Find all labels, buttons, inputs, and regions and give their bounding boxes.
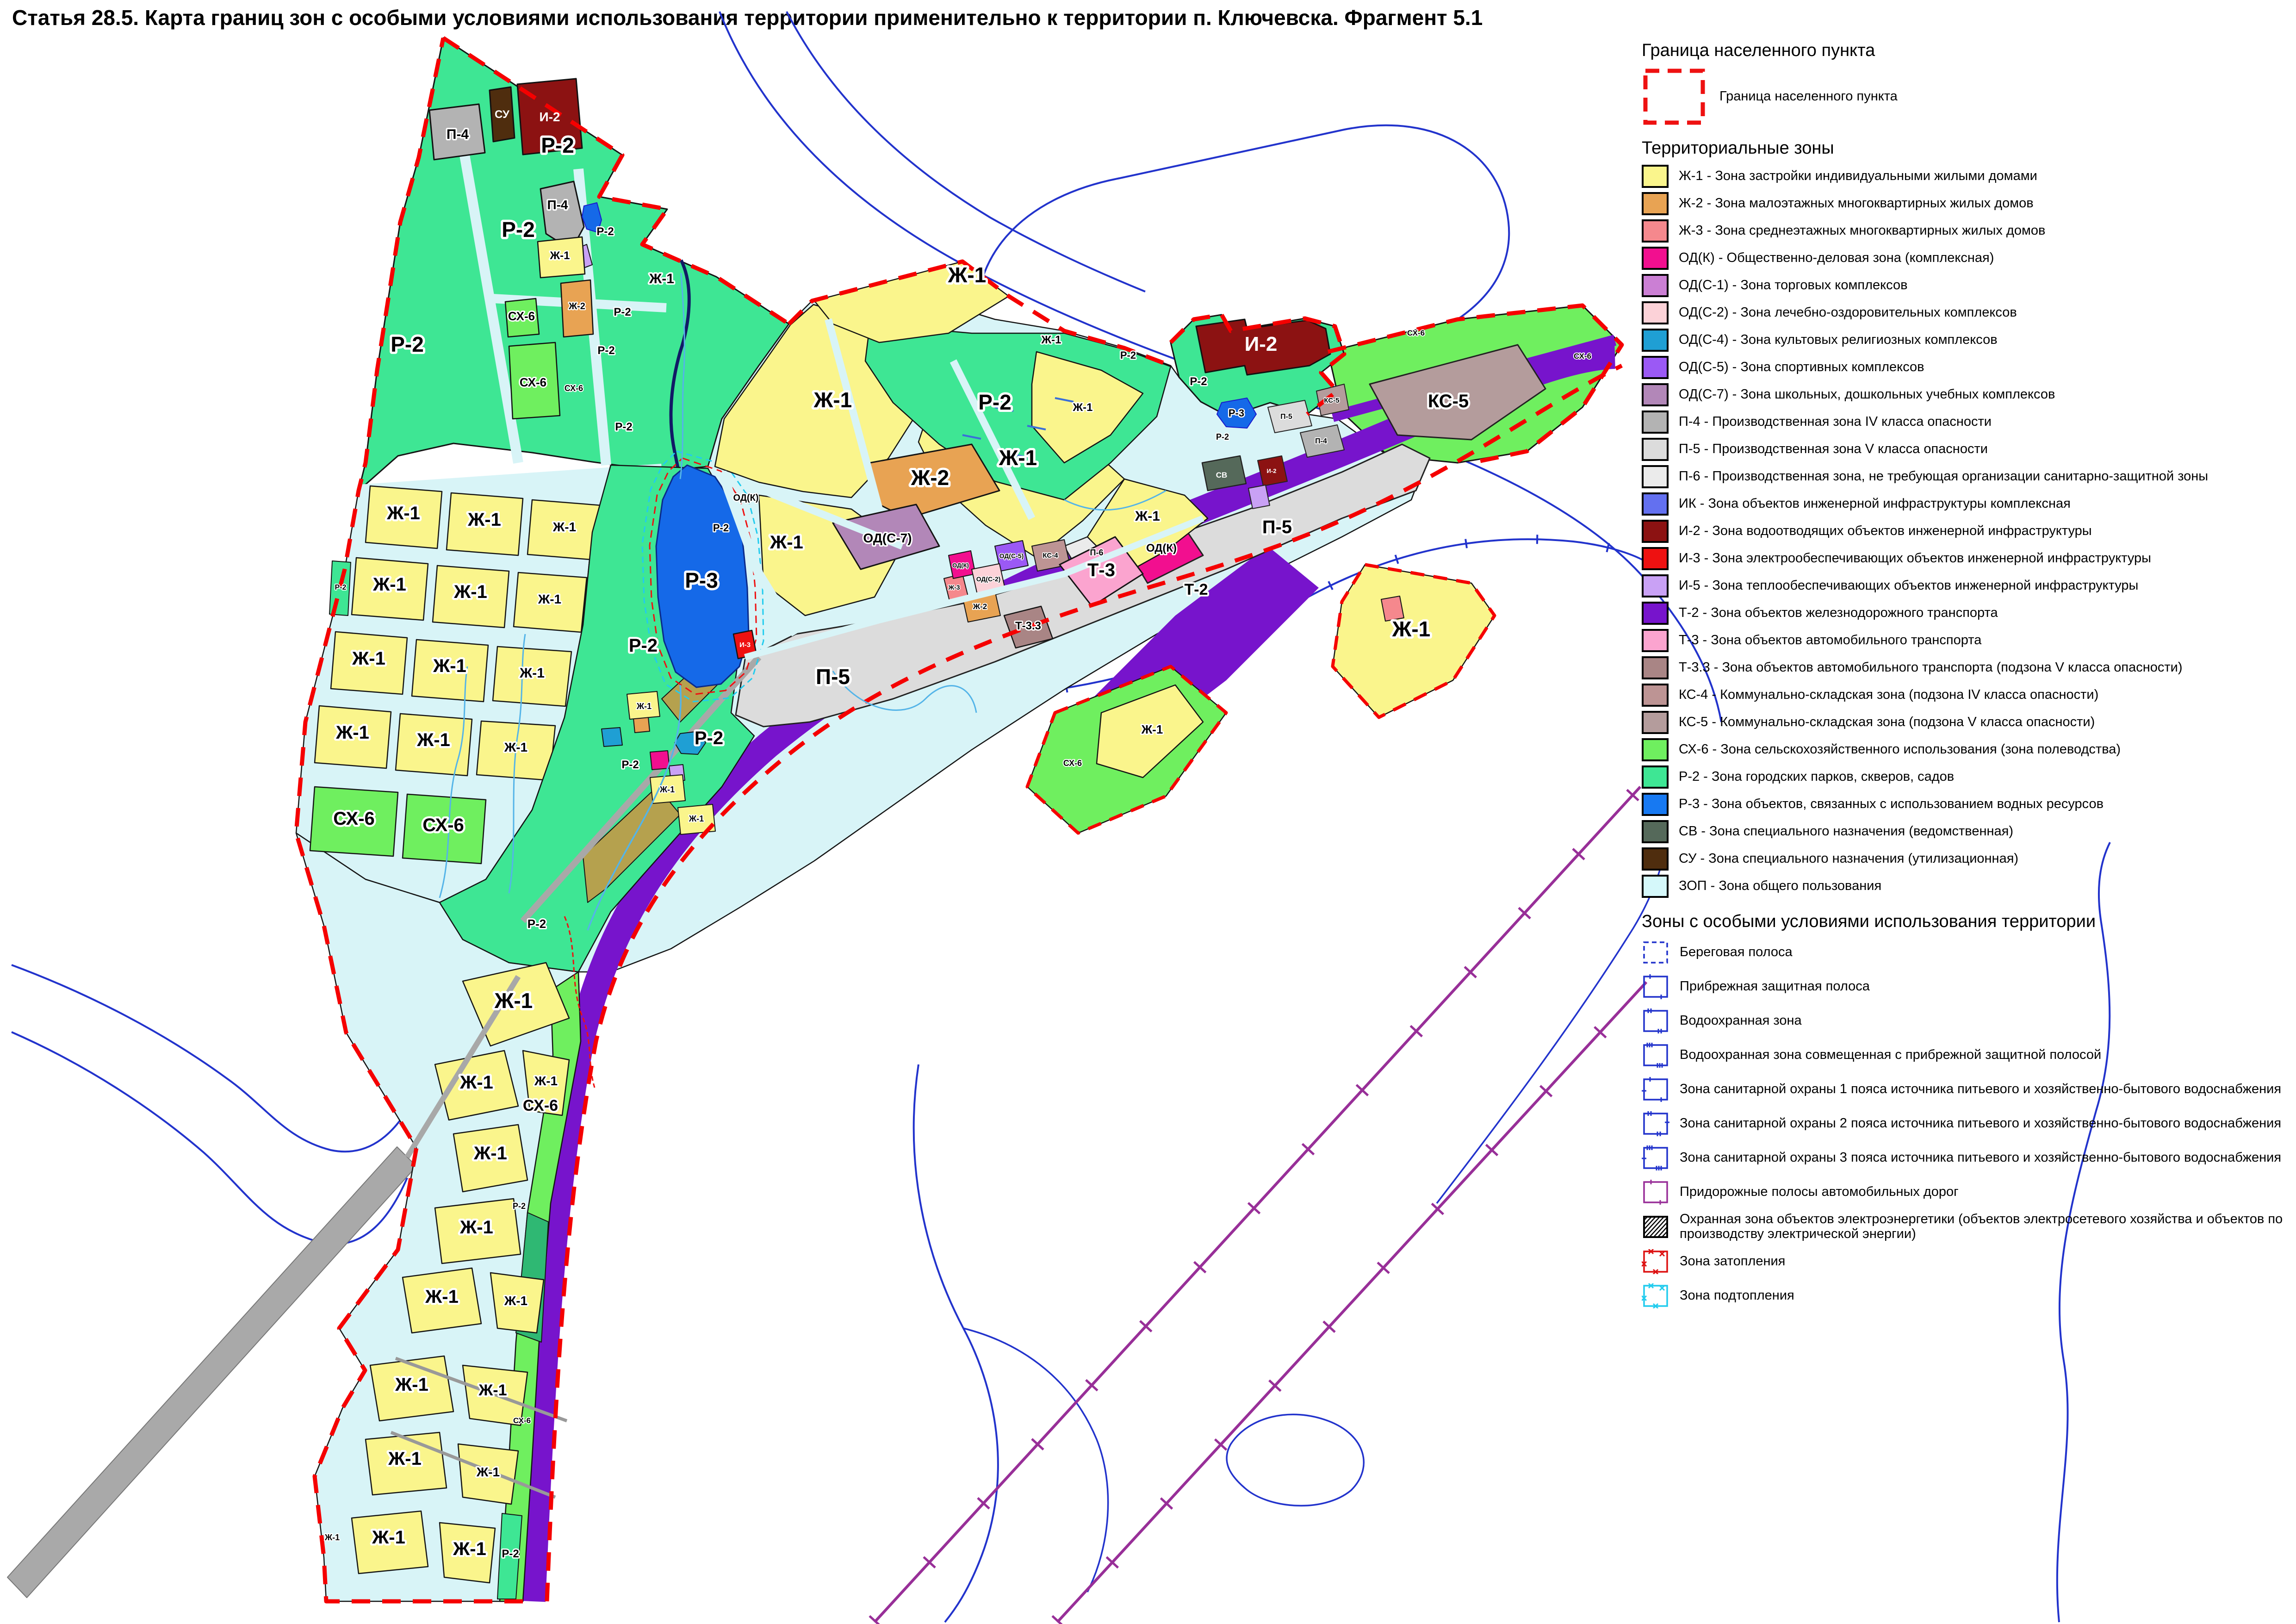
map-zone-label-Ж-1: Ж-1	[494, 989, 533, 1013]
map-zone-label-Р-2: Р-2	[614, 306, 631, 318]
map-zone-label-П-6: П-6	[1090, 548, 1104, 557]
legend-zone-item-ОД(С-4): ОД(С-4) - Зона культовых религиозных ком…	[1642, 329, 2290, 352]
map-zone-label-Ж-2: Ж-2	[973, 602, 987, 611]
map-zone-label-Т-2: Т-2	[1185, 581, 1208, 598]
special-swatch	[1642, 1111, 1669, 1136]
map-zone-label-Ж-1: Ж-1	[352, 648, 385, 669]
map-zone-label-ОД(К): ОД(К)	[733, 493, 758, 503]
legend-zone-item-Ж-1: Ж-1 - Зона застройки индивидуальными жил…	[1642, 165, 2290, 188]
legend-zone-item-Р-3: Р-3 - Зона объектов, связанных с использ…	[1642, 793, 2290, 816]
zone-label: ОД(С-1) - Зона торговых комплексов	[1669, 278, 1908, 293]
zone-label: ИК - Зона объектов инженерной инфраструк…	[1669, 497, 2071, 511]
map-zone-label-Ж-1: Ж-1	[476, 1465, 500, 1479]
map-zone-label-Ж-1: Ж-1	[1141, 722, 1163, 736]
map-zone-label-Р-2: Р-2	[1216, 432, 1229, 442]
vodo-swatch-icon	[1642, 1008, 1669, 1033]
legend-special-item: Зона санитарной охраны 2 пояса источника…	[1642, 1109, 2290, 1138]
map-zone-label-Т-3.3: Т-3.3	[1015, 620, 1041, 632]
map-zone-label-Ж-1: Ж-1	[335, 722, 369, 743]
legend-special-item: Зона санитарной охраны 3 пояса источника…	[1642, 1144, 2290, 1172]
map-zone-label-П-5: П-5	[1280, 413, 1292, 421]
map-zone-label-Ж-1: Ж-1	[395, 1375, 428, 1395]
legend-zone-item-КС-5: КС-5 - Коммунально-складская зона (подзо…	[1642, 711, 2290, 734]
special-swatch	[1642, 1077, 1669, 1102]
map-zone-label-СХ-6: СХ-6	[508, 309, 535, 323]
map-zone-label-И-3: И-3	[739, 641, 751, 649]
zone-label: КС-4 - Коммунально-складская зона (подзо…	[1669, 688, 2098, 703]
map-zone-label-СХ-6: СХ-6	[1574, 352, 1591, 361]
legend-zones-list: Ж-1 - Зона застройки индивидуальными жил…	[1642, 165, 2290, 898]
map-zone-label-Р-2: Р-2	[1120, 349, 1136, 361]
map-zone-label-Р-2: Р-2	[695, 728, 723, 748]
legend-special-item: Зона затопления	[1642, 1247, 2290, 1276]
zone-color-swatch	[1642, 165, 1669, 188]
map-zone-label-Ж-1: Ж-1	[538, 592, 561, 606]
map-zone-label-СХ-6: СХ-6	[565, 384, 583, 393]
legend-zone-item-Т-3.3: Т-3.3 - Зона объектов автомобильного тра…	[1642, 656, 2290, 679]
map-zone-label-Р-2: Р-2	[1190, 375, 1207, 388]
map-zone-label-ОД(К): ОД(К)	[1146, 542, 1177, 554]
map-zone-label-СУ: СУ	[495, 108, 510, 121]
map-zone-label-Ж-1: Ж-1	[769, 532, 803, 553]
map-zone-label-Р-2: Р-2	[335, 584, 347, 591]
special-swatch	[1642, 1008, 1669, 1033]
zone-label: Ж-2 - Зона малоэтажных многоквартирных ж…	[1669, 196, 2034, 211]
legend-zones-header: Территориальные зоны	[1642, 138, 2290, 158]
zone-color-swatch	[1642, 656, 1669, 679]
map-zone-label-Ж-2: Ж-2	[568, 301, 585, 311]
special-label: Зона затопления	[1669, 1254, 1785, 1269]
legend-zone-item-И-2: И-2 - Зона водоотводящих объектов инжене…	[1642, 520, 2290, 543]
map-zone-label-СХ-6: СХ-6	[523, 1097, 558, 1114]
map-zone-label-СХ-6: СХ-6	[1063, 759, 1082, 768]
special-label: Прибрежная защитная полоса	[1669, 979, 1870, 994]
zone-label: ЗОП - Зона общего пользования	[1669, 879, 1881, 894]
zone-label: И-5 - Зона теплообеспечивающих объектов …	[1669, 579, 2138, 593]
special-swatch	[1642, 1043, 1669, 1068]
zone-color-swatch	[1642, 329, 1669, 352]
map-zone-label-ОД(С-2): ОД(С-2)	[976, 575, 1001, 583]
zone-color-swatch	[1642, 465, 1669, 488]
map-zone-label-Р-2: Р-2	[527, 917, 546, 931]
zone-color-swatch	[1642, 247, 1669, 270]
map-zone-label-СХ-6: СХ-6	[1407, 329, 1425, 337]
legend-zone-item-СУ: СУ - Зона специального назначения (утили…	[1642, 847, 2290, 871]
map-zone-label-Р-2: Р-2	[541, 133, 574, 157]
map-shape-stream-north-2	[787, 12, 1145, 292]
map-zone-label-Ж-1: Ж-1	[453, 582, 487, 602]
map-zone-label-Р-2: Р-2	[978, 390, 1011, 414]
zone-label: ОД(С-2) - Зона лечебно-оздоровительных к…	[1669, 305, 2017, 320]
special-label: Зона подтопления	[1669, 1288, 1794, 1303]
map-zone-label-Ж-1: Ж-1	[425, 1287, 459, 1307]
legend-zone-item-ОД(К): ОД(К) - Общественно-деловая зона (компле…	[1642, 247, 2290, 270]
map-shape-stream-south-2	[963, 1328, 1108, 1592]
flood-red-swatch-icon	[1642, 1249, 1669, 1274]
map-zone-label-П-5: П-5	[816, 665, 850, 689]
special-label: Зона санитарной охраны 3 пояса источника…	[1669, 1151, 2281, 1165]
legend-zone-item-ОД(С-1): ОД(С-1) - Зона торговых комплексов	[1642, 274, 2290, 297]
special-label: Зона санитарной охраны 1 пояса источника…	[1669, 1082, 2281, 1097]
boundary-swatch-icon	[1642, 67, 1706, 126]
zone-label: Р-2 - Зона городских парков, скверов, са…	[1669, 770, 1954, 784]
map-zone-label-СВ: СВ	[1216, 471, 1228, 479]
zone-label: Т-3 - Зона объектов автомобильного транс…	[1669, 633, 1981, 648]
zone-label: Ж-3 - Зона среднеэтажных многоквартирных…	[1669, 224, 2045, 238]
legend-special-item: Береговая полоса	[1642, 938, 2290, 967]
special-swatch	[1642, 1145, 1669, 1170]
zone-label: ОД(С-7) - Зона школьных, дошкольных учеб…	[1669, 387, 2055, 402]
map-zone-label-Ж-1: Ж-1	[1041, 334, 1061, 346]
map-shape-stream-south-1	[914, 1064, 998, 1622]
legend-zone-item-СВ: СВ - Зона специального назначения (ведом…	[1642, 820, 2290, 843]
map-zone-label-Ж-1: Ж-1	[433, 656, 466, 676]
map-shape-roadside-line-2	[1057, 982, 1646, 1622]
zone-label: Т-3.3 - Зона объектов автомобильного тра…	[1669, 660, 2183, 675]
zone-color-swatch	[1642, 875, 1669, 898]
map-shape-pond-loop	[1227, 1414, 1364, 1506]
map-zone-label-Ж-1: Ж-1	[386, 503, 420, 523]
zone-label: СВ - Зона специального назначения (ведом…	[1669, 824, 2013, 839]
map-zone-label-СХ-6: СХ-6	[520, 375, 546, 389]
legend-zone-item-СХ-6: СХ-6 - Зона сельскохозяйственного исполь…	[1642, 738, 2290, 761]
map-zone-label-Ж-1: Ж-1	[388, 1449, 422, 1469]
special-swatch	[1642, 1214, 1669, 1239]
map-shape-appendix-e-yellow	[1333, 565, 1495, 717]
zone-label: СУ - Зона специального назначения (утили…	[1669, 852, 2018, 866]
zone-color-swatch	[1642, 411, 1669, 434]
zone-color-swatch	[1642, 847, 1669, 871]
map-zone-label-П-5: П-5	[1262, 517, 1292, 537]
legend-zone-item-ОД(С-5): ОД(С-5) - Зона спортивных комплексов	[1642, 356, 2290, 379]
map-zone-label-Р-2: Р-2	[621, 759, 639, 771]
map-zone-label-Ж-1: Ж-1	[519, 666, 545, 681]
map-zone-label-ОД(К): ОД(К)	[952, 562, 969, 569]
special-swatch	[1642, 974, 1669, 999]
special-swatch	[1642, 1249, 1669, 1274]
zone-label: И-2 - Зона водоотводящих объектов инжене…	[1669, 524, 2092, 539]
zone-label: П-4 - Производственная зона IV класса оп…	[1669, 415, 1992, 429]
legend-special-item: Придорожные полосы автомобильных дорог	[1642, 1178, 2290, 1207]
zone-color-swatch	[1642, 192, 1669, 215]
map-zone-label-Ж-3: Ж-3	[948, 584, 960, 591]
map-zone-label-Ж-1: Ж-1	[813, 388, 852, 412]
legend-special-item: Охранная зона объектов электроэнергетики…	[1642, 1212, 2290, 1242]
zone-color-swatch	[1642, 629, 1669, 652]
zone-color-swatch	[1642, 520, 1669, 543]
legend-zone-item-Ж-3: Ж-3 - Зона среднеэтажных многоквартирных…	[1642, 219, 2290, 243]
map-zone-label-СХ-6: СХ-6	[422, 815, 464, 835]
map-zone-label-Ж-1: Ж-1	[416, 730, 450, 750]
map-zone-label-Ж-2: Ж-2	[911, 466, 949, 490]
zone-label: П-6 - Производственная зона, не требующа…	[1669, 469, 2208, 484]
zone-color-swatch	[1642, 356, 1669, 379]
map-zone-label-Ж-1: Ж-1	[1072, 401, 1092, 414]
zone-label: Т-2 - Зона объектов железнодорожного тра…	[1669, 606, 1998, 621]
legend-zone-item-П-4: П-4 - Производственная зона IV класса оп…	[1642, 411, 2290, 434]
map-zone-label-Р-2: Р-2	[629, 635, 658, 656]
map-zone-label-Ж-1: Ж-1	[999, 446, 1037, 470]
zone-color-swatch	[1642, 219, 1669, 243]
special-label: Придорожные полосы автомобильных дорог	[1669, 1185, 1959, 1200]
legend-special-header: Зоны с особыми условиями использования т…	[1642, 912, 2290, 932]
special-label: Охранная зона объектов электроэнергетики…	[1669, 1212, 2290, 1242]
zone-color-swatch	[1642, 765, 1669, 789]
legend-special-list: Береговая полосаПрибрежная защитная поло…	[1642, 938, 2290, 1310]
legend-zone-item-ОД(С-7): ОД(С-7) - Зона школьных, дошкольных учеб…	[1642, 383, 2290, 406]
legend-special-item: Водоохранная зона совмещенная с прибрежн…	[1642, 1041, 2290, 1070]
zso2-swatch-icon	[1642, 1111, 1669, 1136]
map-zone-label-Ж-1: Ж-1	[504, 740, 527, 754]
legend-special-item: Прибрежная защитная полоса	[1642, 972, 2290, 1001]
zone-color-swatch	[1642, 738, 1669, 761]
zone-color-swatch	[1642, 274, 1669, 297]
zoning-map-page: Статья 28.5. Карта границ зон с особыми …	[0, 0, 2296, 1624]
zone-label: И-3 - Зона электрообеспечивающих объекто…	[1669, 551, 2151, 566]
map-zone-label-И-2: И-2	[1245, 333, 1278, 355]
prib-swatch-icon	[1642, 974, 1669, 999]
flood-cyan-swatch-icon	[1642, 1283, 1669, 1308]
legend-zone-item-ОД(С-2): ОД(С-2) - Зона лечебно-оздоровительных к…	[1642, 301, 2290, 324]
map-zone-label-Ж-1: Ж-1	[549, 249, 570, 262]
special-label: Береговая полоса	[1669, 945, 1793, 960]
zone-label: Р-3 - Зона объектов, связанных с использ…	[1669, 797, 2104, 812]
map-zone-label-Ж-1: Ж-1	[324, 1533, 340, 1542]
zone-label: КС-5 - Коммунально-складская зона (подзо…	[1669, 715, 2095, 730]
zso1-swatch-icon	[1642, 1077, 1669, 1102]
map-zone-label-Ж-1: Ж-1	[467, 510, 501, 530]
legend-special-item: Зона санитарной охраны 1 пояса источника…	[1642, 1075, 2290, 1104]
map-zone-label-ОД(С-7): ОД(С-7)	[863, 531, 912, 545]
legend-zone-item-КС-4: КС-4 - Коммунально-складская зона (подзо…	[1642, 684, 2290, 707]
map-zone-label-Ж-1: Ж-1	[459, 1217, 493, 1238]
map-zone-label-Ж-1: Ж-1	[459, 1072, 493, 1093]
zone-label: ОД(С-5) - Зона спортивных комплексов	[1669, 360, 1924, 375]
legend-special-item: Зона подтопления	[1642, 1282, 2290, 1310]
zone-color-swatch	[1642, 602, 1669, 625]
map-zone-label-Р-2: Р-2	[615, 421, 632, 433]
map-zone-label-СХ-6: СХ-6	[333, 809, 375, 829]
map-zone-label-Ж-1: Ж-1	[372, 574, 406, 595]
legend-zone-item-Т-2: Т-2 - Зона объектов железнодорожного тра…	[1642, 602, 2290, 625]
map-zone-label-Ж-1: Ж-1	[453, 1539, 486, 1559]
zso3-swatch-icon	[1642, 1145, 1669, 1170]
legend-zone-item-ИК: ИК - Зона объектов инженерной инфраструк…	[1642, 492, 2290, 516]
dashed-blue-swatch-icon	[1642, 940, 1669, 965]
legend-boundary-item: Граница населенного пункта	[1642, 67, 2290, 126]
map-zone-label-КС-4: КС-4	[1043, 552, 1058, 560]
vodo-sovm-swatch-icon	[1642, 1043, 1669, 1068]
zone-label: Ж-1 - Зона застройки индивидуальными жил…	[1669, 169, 2037, 184]
zone-color-swatch	[1642, 684, 1669, 707]
legend-zone-item-И-3: И-3 - Зона электрообеспечивающих объекто…	[1642, 547, 2290, 570]
map-shape-ods4-hex-2	[602, 728, 622, 747]
map-zone-label-Ж-1: Ж-1	[534, 1074, 558, 1088]
legend-zone-item-Р-2: Р-2 - Зона городских парков, скверов, са…	[1642, 765, 2290, 789]
map-zone-label-Р-2: Р-2	[502, 218, 535, 242]
special-label: Водоохранная зона совмещенная с прибрежн…	[1669, 1048, 2101, 1063]
zone-label: ОД(К) - Общественно-деловая зона (компле…	[1669, 251, 1994, 266]
zone-color-swatch	[1642, 820, 1669, 843]
map-zone-label-Ж-1: Ж-1	[659, 785, 675, 794]
map-zone-label-Т-3: Т-3	[1087, 560, 1115, 580]
legend-zone-item-П-5: П-5 - Производственная зона V класса опа…	[1642, 438, 2290, 461]
zone-label: П-5 - Производственная зона V класса опа…	[1669, 442, 1988, 457]
zone-color-swatch	[1642, 383, 1669, 406]
map-zone-label-П-4: П-4	[547, 198, 568, 212]
map-zone-label-Ж-1: Ж-1	[689, 814, 704, 823]
map-shape-magenta-small-j	[650, 751, 670, 770]
zone-label: СХ-6 - Зона сельскохозяйственного исполь…	[1669, 742, 2121, 757]
special-swatch	[1642, 1180, 1669, 1205]
map-zone-label-КС-5: КС-5	[1324, 397, 1339, 404]
map-zone-label-Ж-1: Ж-1	[372, 1527, 405, 1548]
legend-zone-item-И-5: И-5 - Зона теплообеспечивающих объектов …	[1642, 574, 2290, 597]
map-shape-stream-se-diag	[1437, 862, 1662, 1203]
map-zone-label-КС-5: КС-5	[1428, 391, 1469, 411]
special-label: Зона санитарной охраны 2 пояса источника…	[1669, 1116, 2281, 1131]
map-shape-i5-small-ne	[1248, 485, 1270, 509]
map-zone-label-Р-2: Р-2	[596, 225, 614, 238]
zone-color-swatch	[1642, 301, 1669, 324]
legend-zone-item-Ж-2: Ж-2 - Зона малоэтажных многоквартирных ж…	[1642, 192, 2290, 215]
legend-zone-item-П-6: П-6 - Производственная зона, не требующа…	[1642, 465, 2290, 488]
map-zone-label-Ж-1: Ж-1	[478, 1381, 507, 1399]
special-label: Водоохранная зона	[1669, 1014, 1802, 1028]
map-zone-label-Р-2: Р-2	[713, 522, 729, 534]
special-swatch	[1642, 940, 1669, 965]
map-zone-label-Ж-1: Ж-1	[473, 1143, 507, 1164]
map-zone-label-Р-2: Р-2	[502, 1548, 519, 1560]
hatch-swatch-icon	[1642, 1214, 1669, 1239]
map-zone-label-Р-3: Р-3	[1229, 407, 1244, 419]
legend-zone-item-Т-3: Т-3 - Зона объектов автомобильного транс…	[1642, 629, 2290, 652]
map-zone-label-Ж-1: Ж-1	[636, 702, 652, 711]
map-zone-label-И-2: И-2	[1267, 467, 1277, 474]
zone-color-swatch	[1642, 574, 1669, 597]
map-zone-label-ОД(С-5): ОД(С-5)	[999, 552, 1024, 560]
map-zone-label-Ж-1: Ж-1	[1392, 617, 1430, 641]
map-zone-label-П-4: П-4	[447, 127, 469, 142]
map-zone-label-СХ-6: СХ-6	[513, 1416, 531, 1425]
zone-color-swatch	[1642, 793, 1669, 816]
map-zone-label-Ж-1: Ж-1	[504, 1294, 527, 1308]
zone-color-swatch	[1642, 547, 1669, 570]
special-swatch	[1642, 1283, 1669, 1308]
map-zone-label-Ж-1: Ж-1	[948, 263, 986, 287]
map-zone-label-Р-3: Р-3	[685, 568, 718, 592]
map-zone-label-Ж-1: Ж-1	[552, 520, 576, 534]
legend-boundary-label: Граница населенного пункта	[1706, 89, 1898, 104]
zone-color-swatch	[1642, 492, 1669, 516]
map-zone-label-Р-2: Р-2	[391, 332, 424, 356]
map-zone-label-Ж-1: Ж-1	[1135, 509, 1160, 524]
legend-zone-item-ЗОП: ЗОП - Зона общего пользования	[1642, 875, 2290, 898]
map-zone-label-Р-2: Р-2	[597, 344, 614, 357]
zone-color-swatch	[1642, 711, 1669, 734]
zone-color-swatch	[1642, 438, 1669, 461]
zone-label: ОД(С-4) - Зона культовых религиозных ком…	[1669, 333, 1998, 348]
legend-special-item: Водоохранная зона	[1642, 1007, 2290, 1035]
legend-boundary-header: Граница населенного пункта	[1642, 41, 2290, 61]
map-zone-label-И-2: И-2	[539, 110, 560, 124]
map-zone-label-П-4: П-4	[1315, 437, 1327, 445]
map-zone-label-Р-2: Р-2	[513, 1201, 526, 1211]
legend: Граница населенного пункта Граница насел…	[1642, 41, 2290, 1316]
map-zone-label-Ж-1: Ж-1	[649, 271, 674, 286]
roadside-swatch-icon	[1642, 1180, 1669, 1205]
